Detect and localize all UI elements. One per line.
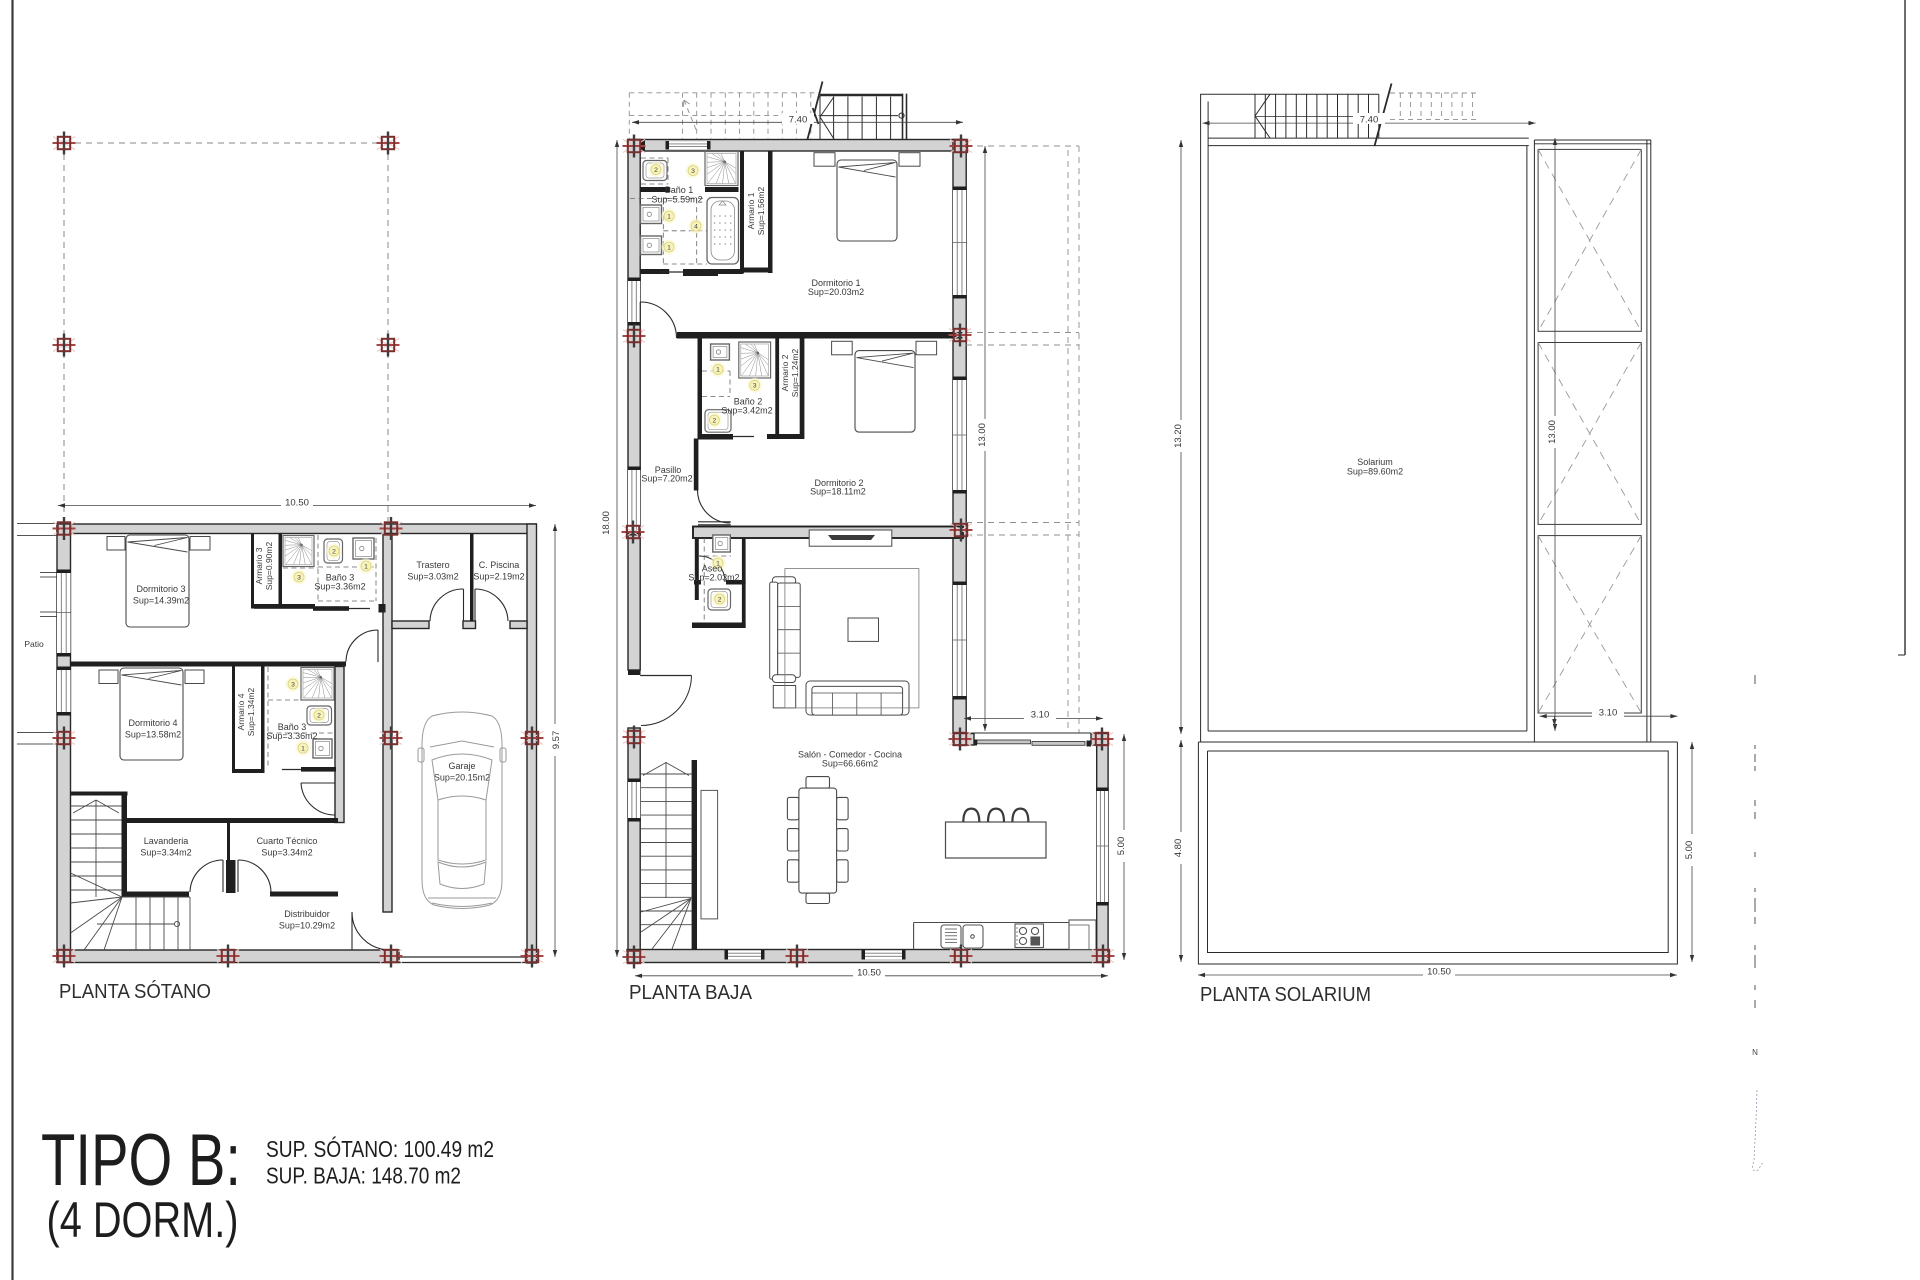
svg-text:Sup=89.60m2: Sup=89.60m2 <box>1347 467 1403 477</box>
svg-text:13.00: 13.00 <box>977 423 988 447</box>
svg-text:Dormitorio 3: Dormitorio 3 <box>136 584 185 594</box>
svg-text:Sup=3.36m2: Sup=3.36m2 <box>314 582 365 592</box>
svg-text:Sup=20.03m2: Sup=20.03m2 <box>808 287 864 297</box>
svg-text:9.57: 9.57 <box>551 731 562 750</box>
svg-text:1: 1 <box>667 213 671 220</box>
svg-text:1: 1 <box>716 367 720 374</box>
svg-text:Sup=3.34m2: Sup=3.34m2 <box>140 848 191 858</box>
svg-text:3.10: 3.10 <box>1031 710 1050 721</box>
svg-text:Baño 1: Baño 1 <box>665 185 694 195</box>
svg-text:Armario 1: Armario 1 <box>746 192 756 229</box>
svg-text:1: 1 <box>667 244 671 251</box>
svg-text:Sup=3.36m2: Sup=3.36m2 <box>266 731 317 741</box>
svg-text:Sup=66.66m2: Sup=66.66m2 <box>822 759 878 769</box>
svg-text:Sup=18.11m2: Sup=18.11m2 <box>810 487 866 497</box>
svg-text:Sup=7.20m2: Sup=7.20m2 <box>641 474 692 484</box>
svg-text:Sup=20.15m2: Sup=20.15m2 <box>434 773 490 783</box>
svg-text:Sup=3.42m2: Sup=3.42m2 <box>721 406 772 416</box>
svg-text:Solarium: Solarium <box>1357 457 1393 467</box>
svg-text:Armario 2: Armario 2 <box>780 354 790 391</box>
svg-text:4.80: 4.80 <box>1173 839 1184 858</box>
svg-text:N: N <box>1752 1048 1758 1057</box>
svg-text:Armario 3: Armario 3 <box>254 547 264 584</box>
svg-text:PLANTA SÓTANO: PLANTA SÓTANO <box>59 980 211 1003</box>
svg-text:(4 DORM.): (4 DORM.) <box>47 1192 239 1248</box>
svg-text:Sup=2.19m2: Sup=2.19m2 <box>473 572 524 582</box>
svg-text:2: 2 <box>718 596 722 603</box>
svg-text:2: 2 <box>317 712 321 719</box>
svg-text:Sup=1.34m2: Sup=1.34m2 <box>246 688 256 737</box>
svg-text:SUP. BAJA: 148.70 m2: SUP. BAJA: 148.70 m2 <box>266 1163 461 1189</box>
svg-text:PLANTA SOLARIUM: PLANTA SOLARIUM <box>1200 983 1371 1006</box>
svg-text:13.00: 13.00 <box>1547 420 1558 444</box>
svg-text:2: 2 <box>713 417 717 424</box>
svg-text:7.40: 7.40 <box>789 115 808 126</box>
svg-text:Patio: Patio <box>24 639 44 649</box>
svg-text:5.00: 5.00 <box>1684 841 1695 860</box>
svg-text:Sup=13.58m2: Sup=13.58m2 <box>125 730 181 740</box>
svg-text:3.10: 3.10 <box>1599 708 1618 719</box>
svg-text:Sup=10.29m2: Sup=10.29m2 <box>279 921 335 931</box>
svg-text:Distribuidor: Distribuidor <box>284 909 330 919</box>
svg-text:1: 1 <box>364 563 368 570</box>
svg-text:3: 3 <box>297 574 301 581</box>
svg-text:Sup=5.59m2: Sup=5.59m2 <box>651 195 702 205</box>
svg-text:Sup=0.90m2: Sup=0.90m2 <box>264 542 274 591</box>
svg-text:10.50: 10.50 <box>1427 967 1451 978</box>
svg-text:2: 2 <box>332 548 336 555</box>
svg-text:Sup=3.03m2: Sup=3.03m2 <box>407 572 458 582</box>
svg-text:PLANTA BAJA: PLANTA BAJA <box>629 981 752 1004</box>
svg-text:Sup=1.24m2: Sup=1.24m2 <box>790 349 800 398</box>
svg-text:2: 2 <box>654 167 658 174</box>
svg-text:Lavanderia: Lavanderia <box>144 836 189 846</box>
svg-text:10.50: 10.50 <box>285 498 309 509</box>
svg-text:Armario 4: Armario 4 <box>236 693 246 730</box>
svg-text:13.20: 13.20 <box>1173 424 1184 448</box>
svg-text:Sup=2.03m2: Sup=2.03m2 <box>688 573 739 583</box>
svg-text:Sup=3.34m2: Sup=3.34m2 <box>261 848 312 858</box>
svg-text:Dormitorio 4: Dormitorio 4 <box>128 718 177 728</box>
svg-text:1: 1 <box>301 745 305 752</box>
svg-text:Trastero: Trastero <box>416 560 449 570</box>
svg-text:Sup=14.39m2: Sup=14.39m2 <box>133 596 189 606</box>
svg-text:Sup=1.56m2: Sup=1.56m2 <box>756 187 766 236</box>
svg-text:SUP. SÓTANO: 100.49 m2: SUP. SÓTANO: 100.49 m2 <box>266 1136 494 1162</box>
svg-text:3: 3 <box>753 383 757 390</box>
svg-text:5.00: 5.00 <box>1116 837 1127 856</box>
svg-text:3: 3 <box>291 681 295 688</box>
svg-text:18.00: 18.00 <box>601 511 612 535</box>
svg-text:7.40: 7.40 <box>1360 115 1379 126</box>
svg-text:Garaje: Garaje <box>448 761 475 771</box>
svg-text:3: 3 <box>691 168 695 175</box>
svg-text:Cuarto Técnico: Cuarto Técnico <box>257 836 318 846</box>
svg-text:C. Piscina: C. Piscina <box>479 560 520 570</box>
svg-text:10.50: 10.50 <box>857 968 881 979</box>
svg-text:4: 4 <box>694 223 698 230</box>
svg-text:TIPO B:: TIPO B: <box>41 1120 241 1201</box>
